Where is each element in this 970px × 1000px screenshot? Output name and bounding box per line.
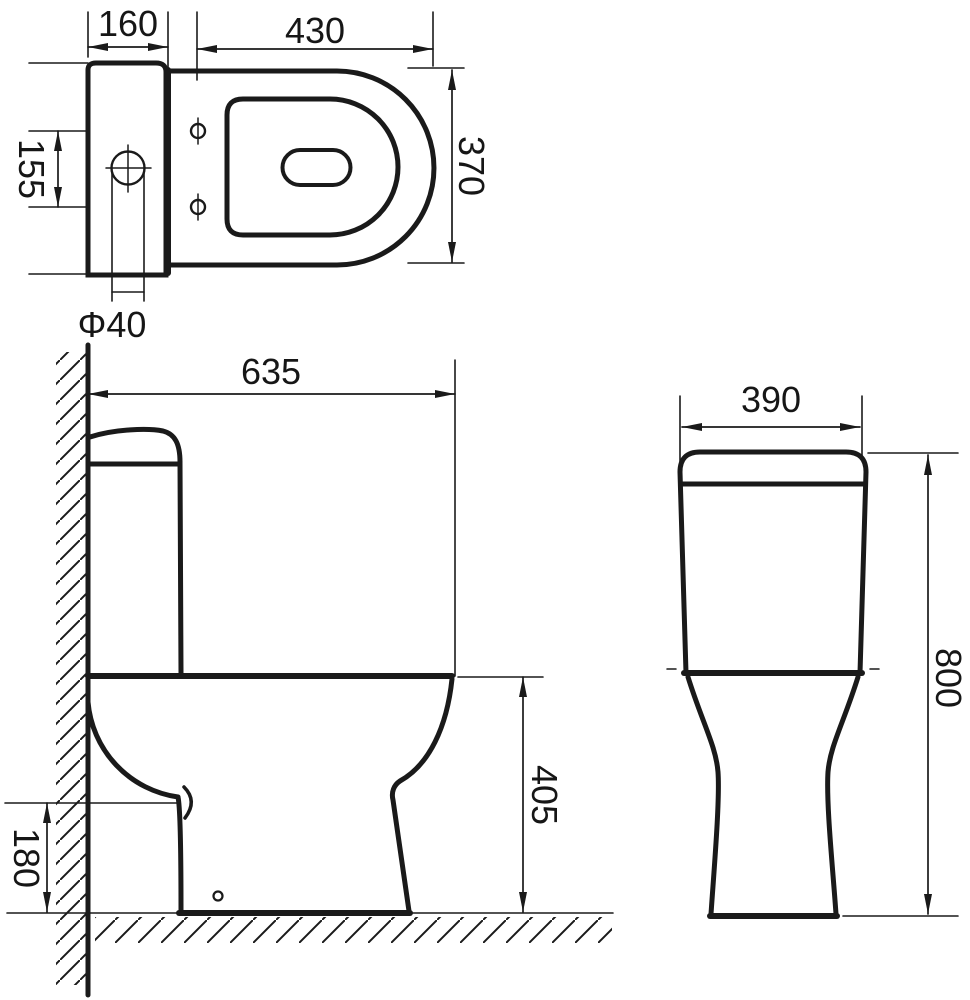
tank-back-edge-side xyxy=(180,462,181,673)
side-view xyxy=(5,345,613,995)
pedestal-left-front xyxy=(688,677,718,914)
pedestal-front-edge xyxy=(178,797,181,911)
bowl-back-profile xyxy=(392,679,452,911)
tank-lid-top-side xyxy=(90,429,180,462)
dim-label-155: 155 xyxy=(11,139,52,199)
drawing-page: 160 430 370 155 Φ40 635 405 180 390 800 xyxy=(0,0,970,1000)
bowl-front-arc xyxy=(88,702,178,797)
top-view xyxy=(29,12,464,301)
front-view xyxy=(667,396,958,916)
dim-label-430: 430 xyxy=(285,10,345,51)
wall-hatch xyxy=(56,352,86,985)
dim-label-370: 370 xyxy=(451,136,492,196)
dim-label-390: 390 xyxy=(741,379,801,420)
dim-label-160: 160 xyxy=(98,3,158,44)
toilet-dimension-drawing: 160 430 370 155 Φ40 635 405 180 390 800 xyxy=(0,0,970,1000)
dim-label-800: 800 xyxy=(928,648,969,708)
dim-label-405: 405 xyxy=(524,765,565,825)
base-fixing-hole xyxy=(214,892,223,901)
tank-outline-top xyxy=(88,63,166,275)
trap-curl xyxy=(184,787,191,818)
dim-label-180: 180 xyxy=(6,828,47,888)
dim-label-phi40: Φ40 xyxy=(78,304,147,345)
floor-hatch xyxy=(95,917,612,943)
dim-label-635: 635 xyxy=(241,351,301,392)
pedestal-right-front xyxy=(828,677,858,914)
